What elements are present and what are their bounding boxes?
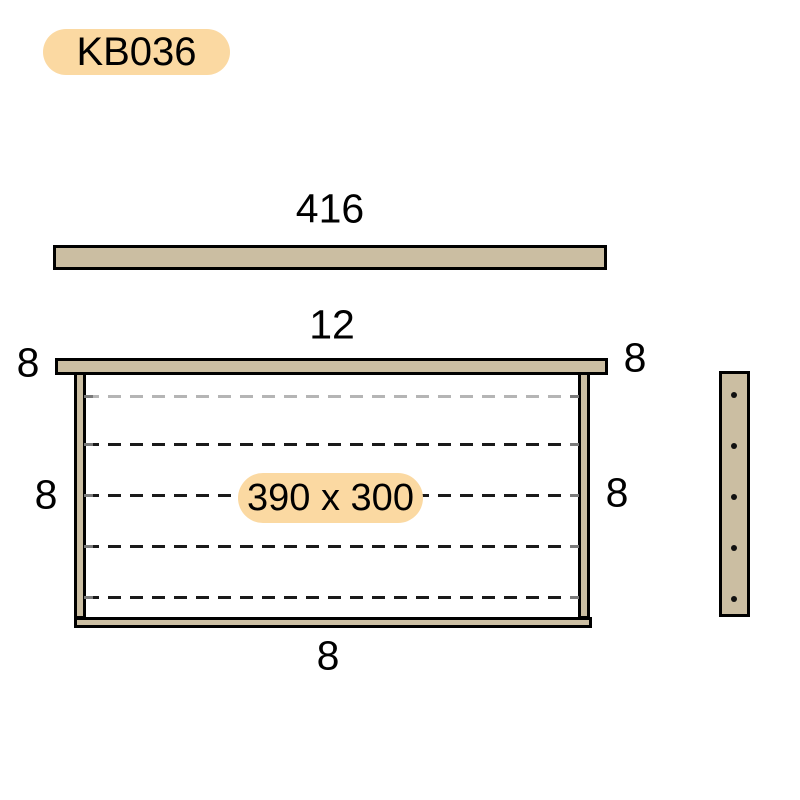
- opening-dimension-label: 390 x 300: [247, 477, 414, 520]
- wire-line: [86, 443, 578, 446]
- dim-side-right: 8: [606, 473, 629, 514]
- part-number-badge: KB036: [43, 29, 230, 75]
- wire-hole-dot: [731, 443, 737, 449]
- wire-tick: [84, 443, 93, 446]
- wire-tick: [84, 395, 93, 398]
- frame-top-bar: [55, 358, 608, 375]
- frame-side-bar-right: [578, 372, 590, 619]
- wire-tick: [570, 596, 579, 599]
- wire-line: [86, 545, 578, 548]
- dim-top-thickness: 12: [309, 305, 355, 346]
- wire-line: [86, 596, 578, 599]
- wire-hole-dot: [731, 392, 737, 398]
- wire-hole-dot: [731, 596, 737, 602]
- dim-top-bar-length: 416: [296, 189, 364, 230]
- wire-line: [86, 395, 578, 398]
- top-bar-part: [53, 245, 607, 270]
- dim-bottom: 8: [317, 636, 340, 677]
- diagram-canvas: KB036 416 12 8 8 8 8 8 390 x 300: [0, 0, 800, 800]
- dim-lug-right: 8: [624, 338, 647, 379]
- wire-tick: [84, 596, 93, 599]
- wire-tick: [570, 545, 579, 548]
- dim-side-left: 8: [35, 475, 58, 516]
- dim-lug-left: 8: [17, 343, 40, 384]
- wire-hole-dot: [731, 545, 737, 551]
- wire-tick: [570, 443, 579, 446]
- opening-dimension-badge: 390 x 300: [238, 473, 423, 523]
- frame-bottom-bar: [74, 617, 592, 628]
- wire-tick: [570, 395, 579, 398]
- wire-hole-dot: [731, 494, 737, 500]
- wire-tick: [84, 494, 93, 497]
- wire-tick: [84, 545, 93, 548]
- wire-tick: [570, 494, 579, 497]
- part-number-label: KB036: [76, 30, 196, 75]
